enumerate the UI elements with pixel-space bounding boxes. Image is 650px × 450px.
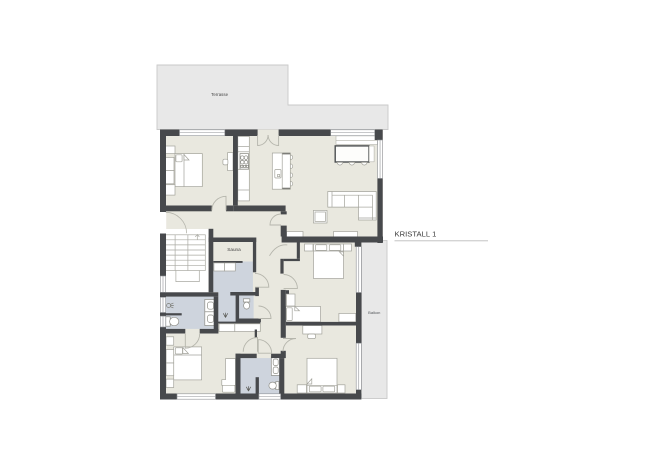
svg-text:Balkon: Balkon — [368, 310, 380, 315]
svg-text:Terrasse: Terrasse — [211, 92, 228, 97]
svg-text:Sauna: Sauna — [227, 247, 241, 252]
svg-text:KRISTALL 1: KRISTALL 1 — [395, 229, 437, 238]
